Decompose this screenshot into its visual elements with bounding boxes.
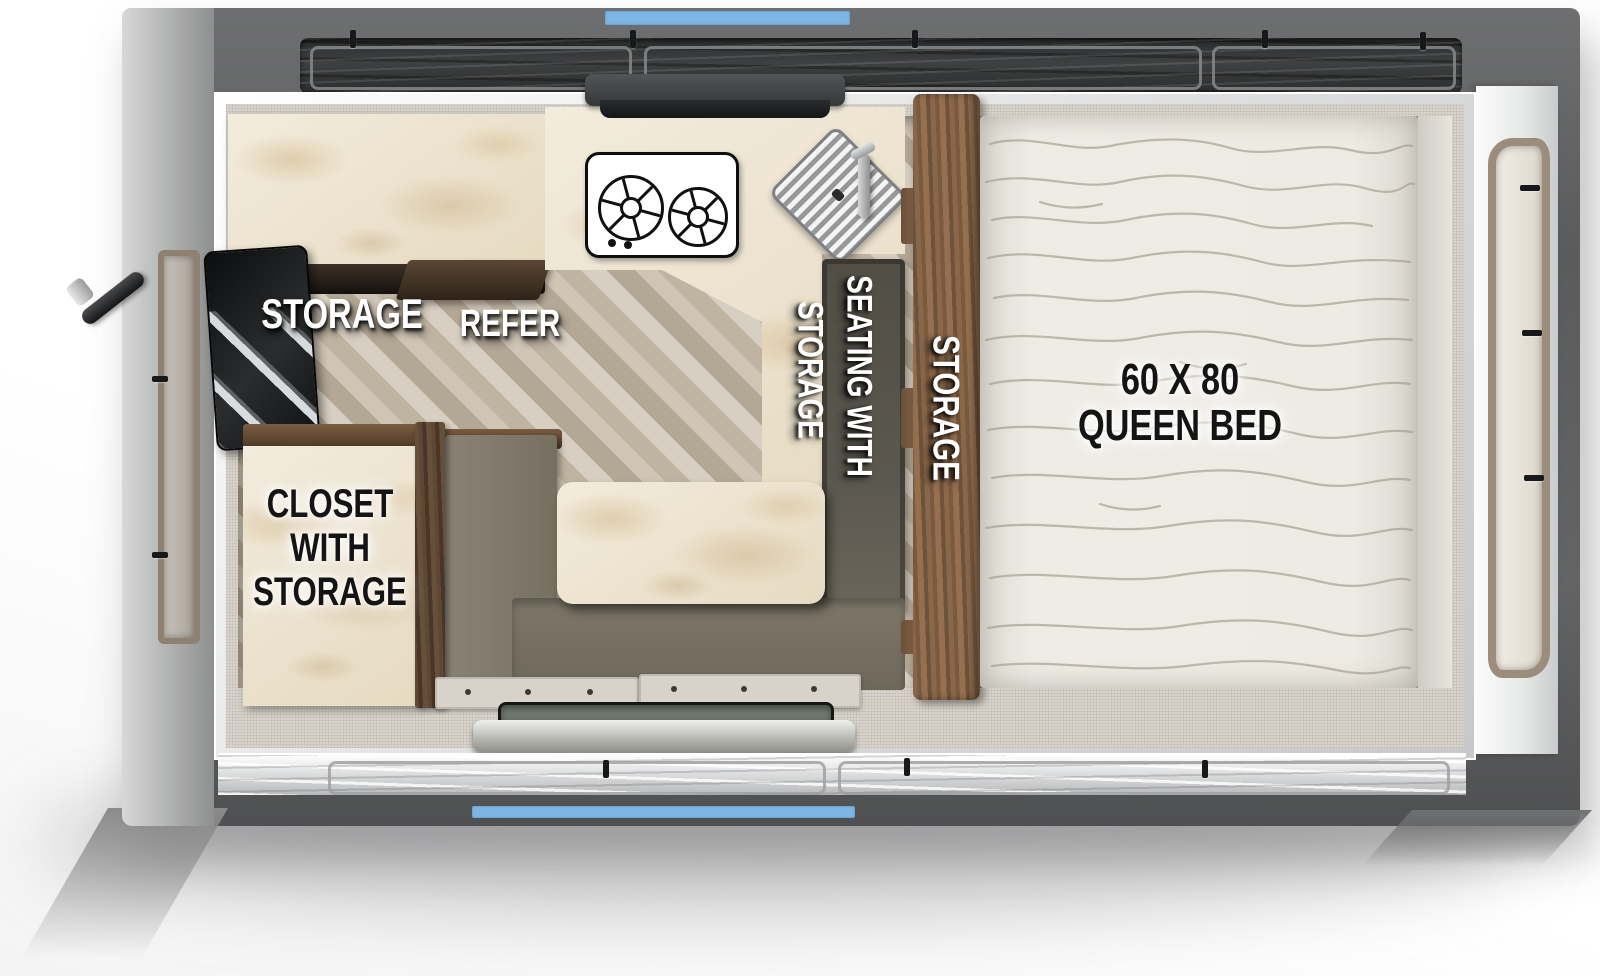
closet-side-panel bbox=[415, 422, 445, 708]
label-seating-storage: STORAGE bbox=[793, 301, 828, 439]
latch-icon bbox=[630, 30, 636, 48]
top-accent-marker bbox=[605, 11, 850, 25]
floorplan-canvas: STORAGE REFER CLOSET WITH STORAGE STORAG… bbox=[0, 0, 1600, 976]
latch-icon bbox=[1202, 760, 1208, 778]
screw-icon bbox=[741, 686, 747, 692]
entry-door bbox=[203, 245, 321, 452]
two-burner-cooktop bbox=[585, 152, 739, 258]
truck-camper-floorplan: STORAGE REFER CLOSET WITH STORAGE STORAG… bbox=[122, 8, 1580, 826]
label-seating-with: SEATING WITH bbox=[842, 275, 877, 477]
latch-icon bbox=[1522, 330, 1542, 336]
range-hood-vent bbox=[600, 100, 830, 118]
label-closet-line3: STORAGE bbox=[253, 572, 407, 612]
storage-cabinet bbox=[228, 114, 545, 266]
stove-knob-icon bbox=[624, 241, 632, 249]
latch-icon bbox=[904, 758, 910, 776]
burner-icon bbox=[598, 175, 664, 241]
label-bed-size: 60 X 80 bbox=[1121, 358, 1239, 402]
label-storage-cabinet: STORAGE bbox=[261, 293, 422, 335]
latch-icon bbox=[1420, 32, 1426, 50]
burner-hub bbox=[620, 197, 642, 219]
sink-drain-icon bbox=[831, 188, 846, 203]
latch-icon bbox=[152, 376, 168, 382]
entry-grab-rail bbox=[473, 720, 855, 752]
top-awning-window-channel bbox=[300, 38, 1462, 94]
screw-icon bbox=[587, 689, 593, 695]
label-closet-line1: CLOSET bbox=[267, 484, 394, 524]
screw-icon bbox=[525, 689, 531, 695]
latch-icon bbox=[603, 760, 609, 778]
latch-icon bbox=[1520, 185, 1540, 191]
window-frame bbox=[1212, 46, 1456, 90]
window-frame bbox=[838, 761, 1450, 795]
burner-icon bbox=[668, 187, 728, 247]
bottom-exterior-wall bbox=[218, 755, 1466, 795]
latch-icon bbox=[152, 552, 168, 558]
stove-knob-icon bbox=[608, 239, 616, 247]
right-wall-window bbox=[1488, 138, 1550, 678]
window-frame bbox=[328, 761, 826, 795]
screw-icon bbox=[811, 686, 817, 692]
window-frame bbox=[310, 46, 632, 90]
left-wall-window bbox=[158, 250, 200, 644]
screw-icon bbox=[465, 689, 471, 695]
burner-hub bbox=[687, 206, 709, 228]
latch-icon bbox=[350, 30, 356, 48]
dinette-table bbox=[557, 482, 825, 604]
label-divider-storage: STORAGE bbox=[928, 335, 965, 481]
label-bed-type: QUEEN BED bbox=[1078, 404, 1282, 448]
bed-platform-deck bbox=[1418, 116, 1452, 688]
label-refrigerator: REFER bbox=[460, 305, 560, 343]
label-closet-line2: WITH bbox=[290, 528, 370, 568]
latch-icon bbox=[1262, 30, 1268, 48]
latch-icon bbox=[912, 30, 918, 48]
closet-wood-cap bbox=[243, 424, 420, 448]
bottom-accent-marker bbox=[472, 806, 855, 818]
faucet-icon bbox=[858, 154, 870, 218]
latch-icon bbox=[1524, 475, 1544, 481]
camper-jack-tip bbox=[65, 276, 96, 307]
screw-icon bbox=[671, 686, 677, 692]
